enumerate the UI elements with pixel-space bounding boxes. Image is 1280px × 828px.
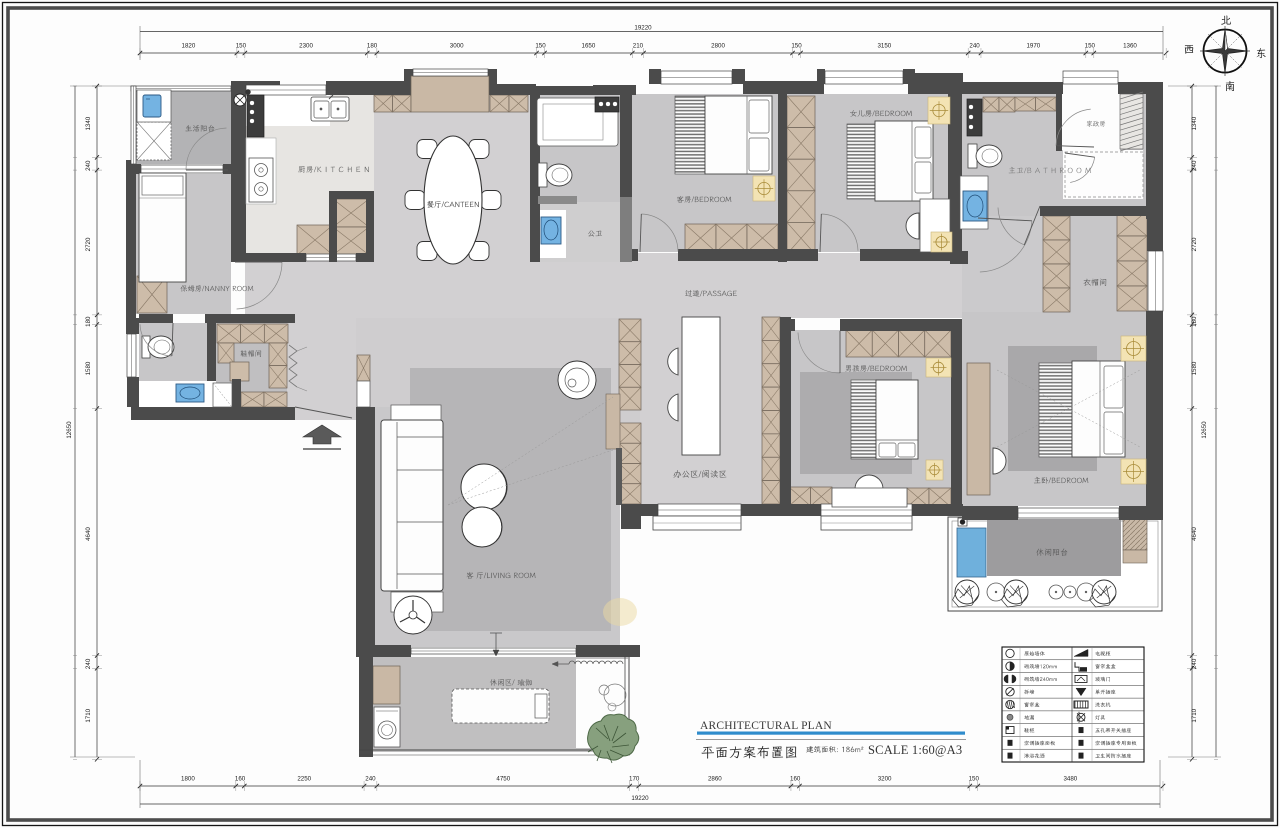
svg-text:150: 150 [1085, 43, 1096, 50]
svg-text:170: 170 [629, 776, 640, 783]
svg-text:19220: 19220 [634, 25, 652, 32]
svg-text:1820: 1820 [182, 43, 196, 50]
svg-text:150: 150 [236, 43, 247, 50]
svg-text:1580: 1580 [85, 361, 92, 375]
svg-text:2800: 2800 [711, 43, 725, 50]
svg-text:12650: 12650 [1201, 421, 1208, 439]
svg-text:210: 210 [633, 43, 644, 50]
svg-text:12650: 12650 [66, 421, 73, 439]
svg-text:2300: 2300 [299, 43, 313, 50]
svg-text:4640: 4640 [85, 527, 92, 541]
svg-text:4750: 4750 [496, 776, 510, 783]
svg-text:2250: 2250 [297, 776, 311, 783]
svg-text:1340: 1340 [85, 116, 92, 130]
svg-text:1650: 1650 [582, 43, 596, 50]
svg-text:150: 150 [969, 776, 980, 783]
svg-text:ARCHITECTURAL PLAN: ARCHITECTURAL PLAN [700, 720, 832, 732]
svg-text:19220: 19220 [631, 795, 649, 802]
svg-text:160: 160 [235, 776, 246, 783]
svg-text:180: 180 [367, 43, 378, 50]
svg-text:4640: 4640 [1191, 527, 1198, 541]
svg-text:3150: 3150 [877, 43, 891, 50]
svg-text:240: 240 [85, 658, 92, 669]
svg-text:2720: 2720 [1191, 237, 1198, 251]
svg-text:240: 240 [1191, 658, 1198, 669]
svg-text:180: 180 [1191, 316, 1198, 327]
svg-text:2860: 2860 [708, 776, 722, 783]
svg-text:1360: 1360 [1123, 43, 1137, 50]
svg-text:3200: 3200 [878, 776, 892, 783]
svg-text:180: 180 [85, 316, 92, 327]
svg-text:150: 150 [535, 43, 546, 50]
svg-text:1710: 1710 [85, 708, 92, 722]
svg-text:SCALE 1:60@A3: SCALE 1:60@A3 [868, 743, 962, 757]
svg-text:1340: 1340 [1191, 116, 1198, 130]
svg-text:1580: 1580 [1191, 361, 1198, 375]
svg-text:160: 160 [790, 776, 801, 783]
svg-text:240: 240 [85, 160, 92, 171]
svg-text:150: 150 [791, 43, 802, 50]
svg-text:1710: 1710 [1191, 708, 1198, 722]
svg-text:240: 240 [1191, 160, 1198, 171]
svg-text:240: 240 [365, 776, 376, 783]
svg-text:3480: 3480 [1063, 776, 1077, 783]
svg-text:3000: 3000 [450, 43, 464, 50]
svg-text:240: 240 [969, 43, 980, 50]
svg-text:1800: 1800 [181, 776, 195, 783]
svg-text:2720: 2720 [85, 237, 92, 251]
svg-text:1970: 1970 [1026, 43, 1040, 50]
